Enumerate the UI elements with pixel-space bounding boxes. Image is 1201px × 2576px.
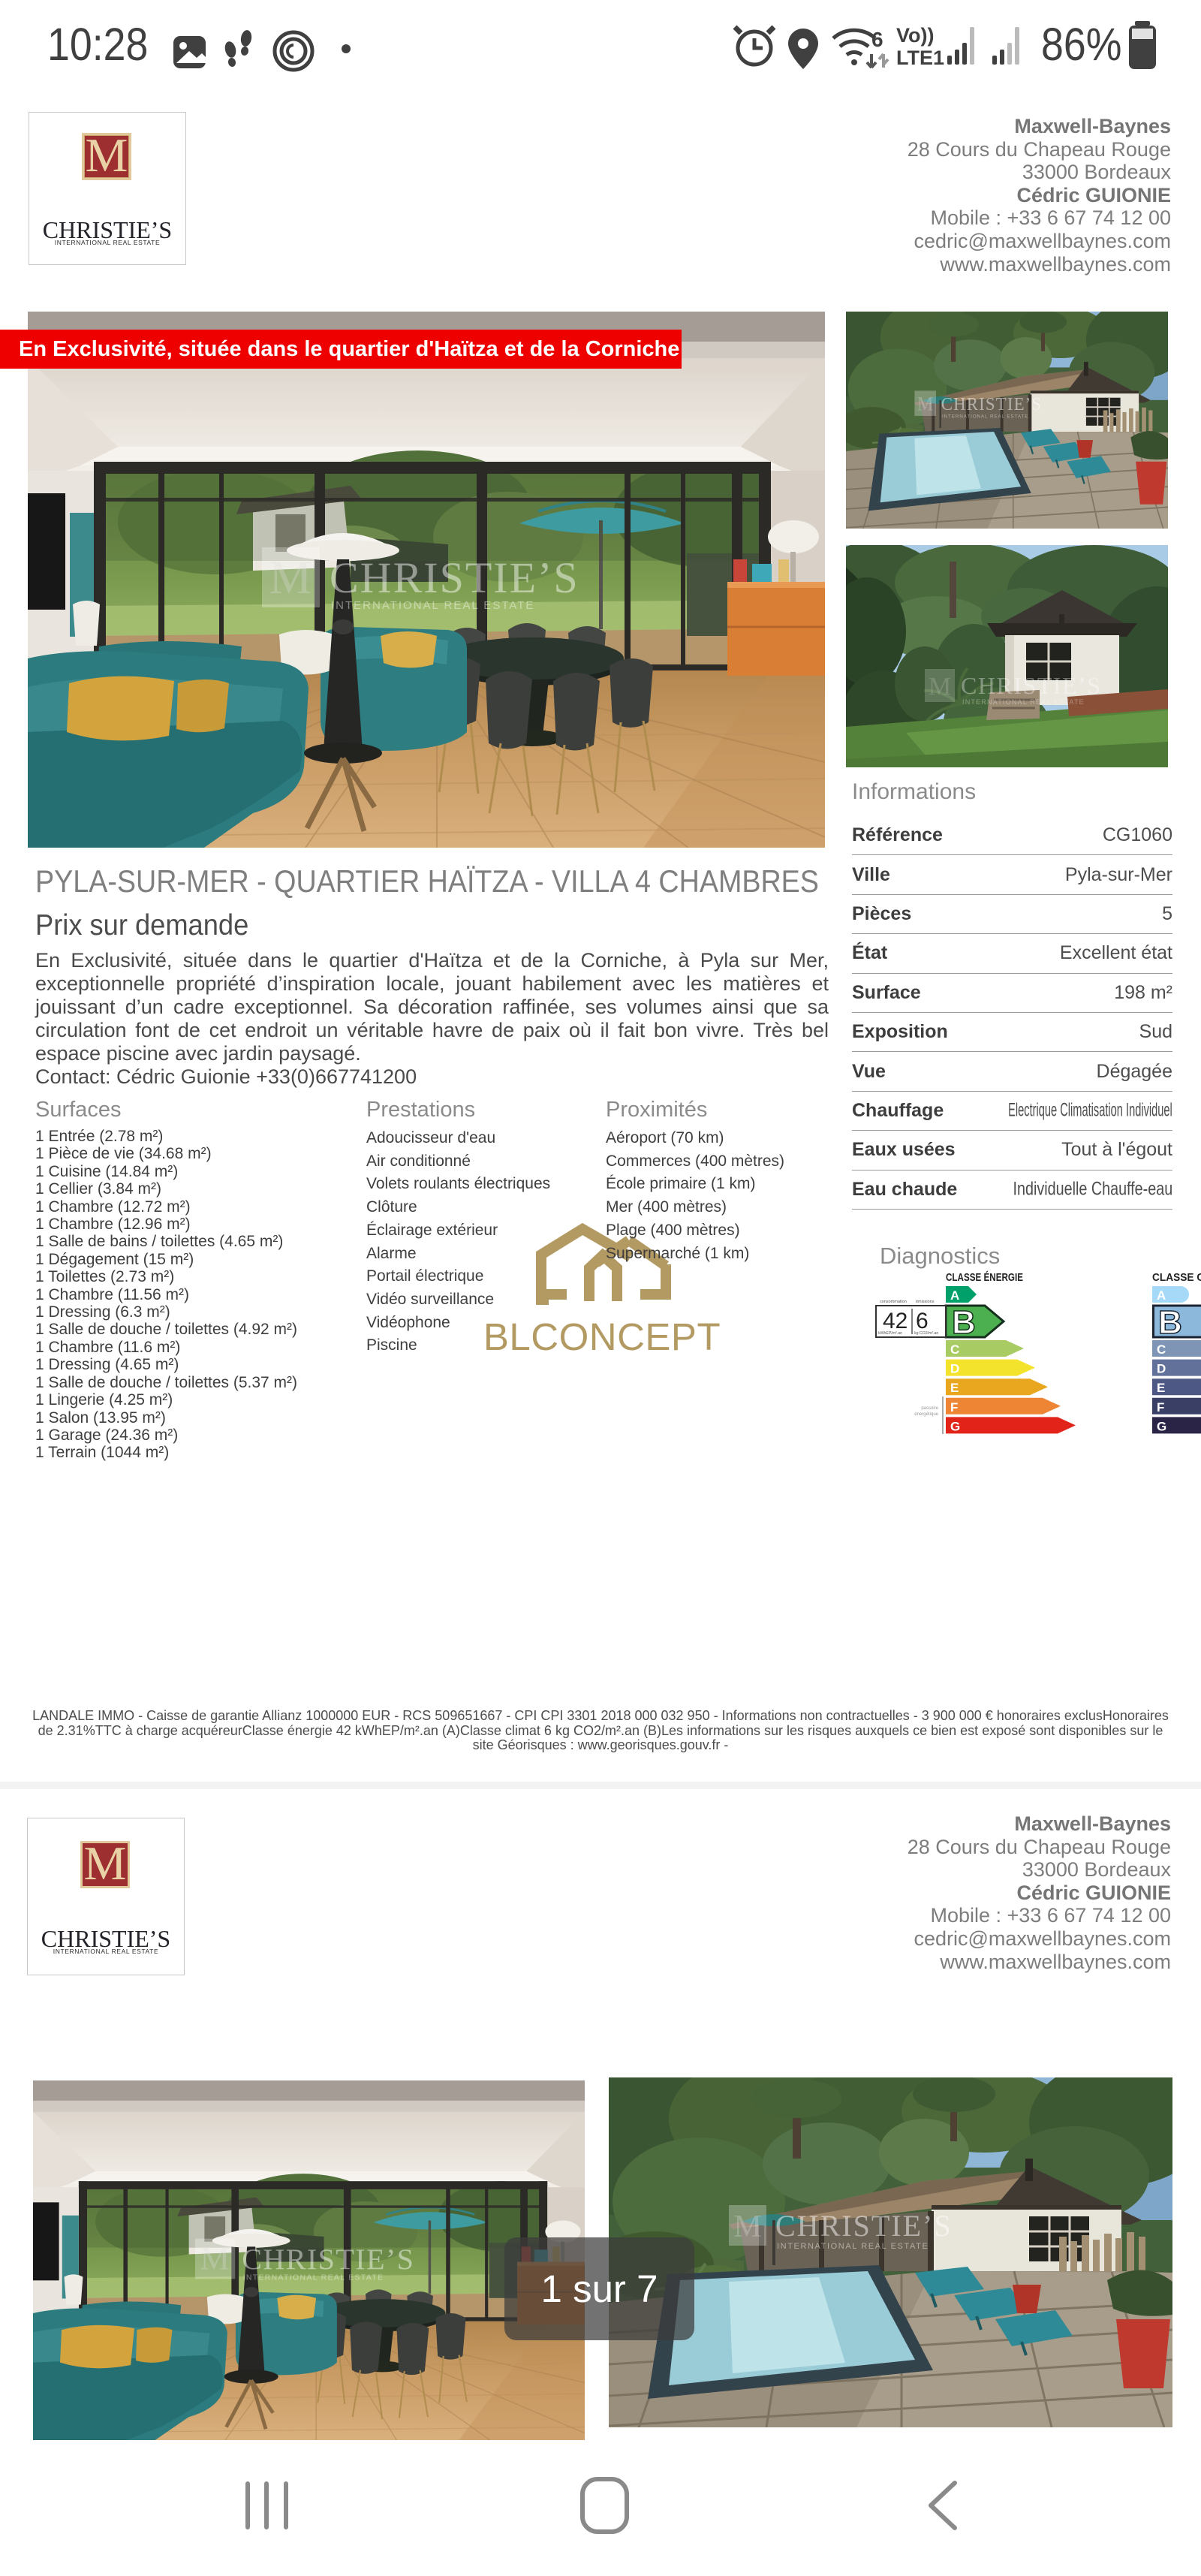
svg-text:6: 6 — [916, 1309, 929, 1333]
svg-text:CLASSE ÉNERGIE: CLASSE ÉNERGIE — [946, 1271, 1023, 1284]
svg-text:F: F — [950, 1400, 958, 1415]
svg-text:B: B — [952, 1304, 976, 1341]
svg-text:E: E — [1157, 1381, 1165, 1395]
svg-text:D: D — [950, 1362, 959, 1376]
svg-text:6: 6 — [871, 28, 883, 51]
svg-text:B: B — [1158, 1304, 1182, 1341]
svg-text:Vo)): Vo)) — [896, 24, 934, 47]
svg-text:consommation: consommation — [880, 1300, 907, 1304]
svg-text:C: C — [1157, 1342, 1166, 1357]
svg-text:D: D — [1157, 1362, 1166, 1376]
svg-text:CLASSE CLIMAT: CLASSE CLIMAT — [1152, 1272, 1201, 1284]
svg-text:G: G — [950, 1419, 960, 1433]
svg-text:A: A — [950, 1288, 959, 1303]
svg-text:LTE1: LTE1 — [896, 47, 944, 69]
svg-text:énergétique: énergétique — [914, 1412, 938, 1417]
svg-text:F: F — [1157, 1400, 1164, 1415]
svg-text:C: C — [950, 1342, 959, 1357]
svg-text:G: G — [1157, 1419, 1166, 1433]
svg-text:42: 42 — [883, 1309, 908, 1333]
svg-text:passoire: passoire — [921, 1406, 938, 1411]
svg-text:A: A — [1157, 1288, 1166, 1303]
svg-text:émissions: émissions — [916, 1300, 935, 1304]
svg-text:kWhEP/m².an: kWhEP/m².an — [878, 1331, 902, 1336]
svg-text:kg CO2/m².an: kg CO2/m².an — [914, 1331, 938, 1336]
svg-text:E: E — [950, 1381, 959, 1395]
